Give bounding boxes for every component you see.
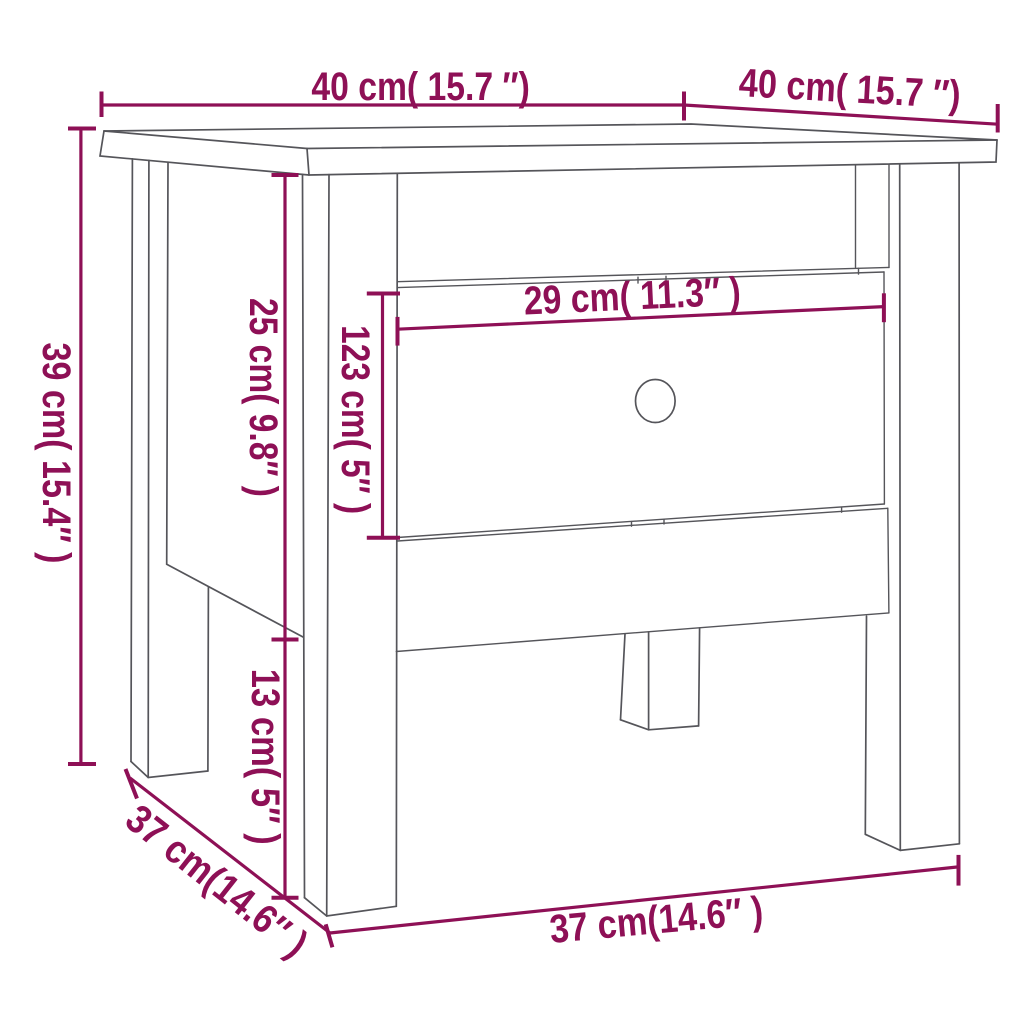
svg-text:123 cm( 5″ ): 123 cm( 5″ ) bbox=[333, 325, 377, 514]
svg-text:13 cm( 5″ ): 13 cm( 5″ ) bbox=[243, 669, 287, 845]
svg-text:25 cm( 9.8″ ): 25 cm( 9.8″ ) bbox=[241, 298, 285, 497]
svg-text:40 cm( 15.7 ″): 40 cm( 15.7 ″) bbox=[311, 65, 529, 109]
svg-text:39 cm( 15.4″ ): 39 cm( 15.4″ ) bbox=[34, 343, 78, 564]
